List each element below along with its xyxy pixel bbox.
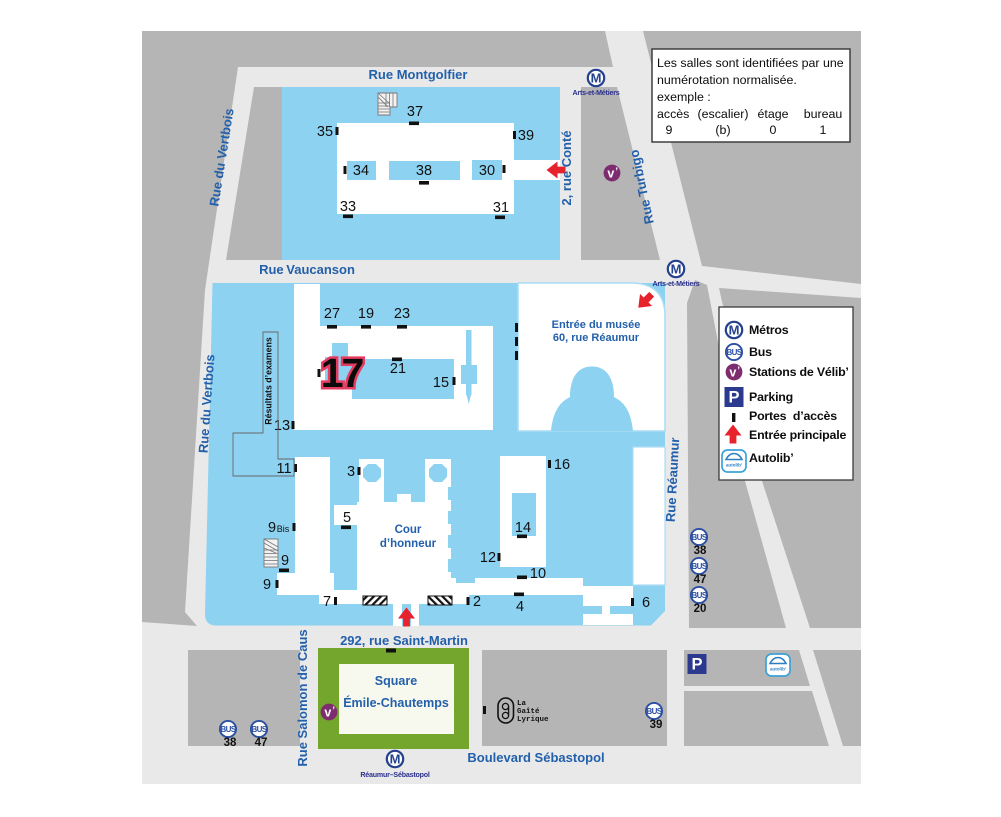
svg-text:6: 6: [642, 595, 650, 611]
svg-text:Portes d’accès: Portes d’accès: [749, 409, 837, 423]
svg-text:Entrée du musée: Entrée du musée: [552, 319, 641, 331]
svg-text:Stations de Vélib’: Stations de Vélib’: [749, 365, 849, 379]
svg-text:38: 38: [224, 737, 237, 749]
svg-text:(b): (b): [715, 123, 730, 137]
svg-text:16: 16: [554, 457, 570, 473]
svg-text:Rue Montgolfier: Rue Montgolfier: [369, 67, 468, 82]
svg-text:9: 9: [263, 577, 271, 593]
svg-text:étage: étage: [757, 107, 788, 121]
svg-text:1: 1: [820, 123, 827, 137]
svg-text:35: 35: [317, 124, 333, 140]
svg-text:Bus: Bus: [749, 345, 772, 359]
svg-text:Square: Square: [375, 674, 417, 688]
svg-text:11: 11: [276, 461, 291, 477]
svg-text:Rue Vaucanson: Rue Vaucanson: [259, 262, 355, 277]
svg-text:Réaumur–Sébastopol: Réaumur–Sébastopol: [360, 771, 430, 779]
svg-text:9: 9: [666, 123, 673, 137]
svg-text:23: 23: [394, 306, 410, 322]
svg-text:Gaîté: Gaîté: [517, 708, 540, 716]
svg-text:(escalier): (escalier): [698, 107, 749, 121]
svg-text:9: 9: [268, 520, 276, 536]
svg-text:12: 12: [480, 550, 496, 566]
svg-text:39: 39: [650, 719, 663, 731]
svg-text:numérotation normalisée.: numérotation normalisée.: [657, 73, 797, 87]
svg-text:10: 10: [530, 566, 546, 582]
svg-text:31: 31: [493, 200, 509, 216]
svg-text:4: 4: [516, 599, 524, 615]
svg-text:33: 33: [340, 199, 356, 215]
svg-text:Résultats d’examens: Résultats d’examens: [264, 337, 274, 425]
svg-text:27: 27: [324, 306, 340, 322]
svg-text:5: 5: [343, 510, 351, 526]
svg-text:38: 38: [694, 545, 707, 557]
svg-text:2: 2: [473, 594, 481, 610]
svg-text:13: 13: [274, 418, 290, 434]
svg-text:37: 37: [407, 104, 423, 120]
svg-text:7: 7: [323, 594, 331, 610]
svg-text:15: 15: [433, 375, 449, 391]
svg-text:Émile-Chautemps: Émile-Chautemps: [343, 695, 449, 710]
svg-text:30: 30: [479, 163, 495, 179]
svg-text:17: 17: [321, 350, 363, 396]
svg-text:Autolib’: Autolib’: [749, 451, 794, 465]
svg-text:2, rue Conté: 2, rue Conté: [559, 130, 574, 205]
svg-text:0: 0: [770, 123, 777, 137]
svg-text:21: 21: [390, 361, 406, 377]
svg-text:exemple :: exemple :: [657, 90, 711, 104]
svg-text:bureau: bureau: [804, 107, 843, 121]
svg-text:Parking: Parking: [749, 390, 793, 404]
svg-text:3: 3: [347, 464, 355, 480]
svg-text:Métros: Métros: [749, 323, 789, 337]
svg-text:Arts-et-Métiers: Arts-et-Métiers: [572, 89, 619, 97]
svg-text:60, rue Réaumur: 60, rue Réaumur: [553, 332, 640, 344]
svg-text:38: 38: [416, 163, 432, 179]
svg-text:Lyrique: Lyrique: [517, 716, 549, 724]
svg-text:9: 9: [281, 553, 289, 569]
svg-text:47: 47: [255, 737, 268, 749]
svg-text:Bis: Bis: [277, 524, 290, 534]
svg-text:Les salles sont identifiées pa: Les salles sont identifiées par une: [657, 56, 844, 70]
svg-text:Arts-et-Métiers: Arts-et-Métiers: [652, 280, 699, 288]
svg-text:34: 34: [353, 163, 369, 179]
svg-text:39: 39: [518, 128, 534, 144]
svg-text:accès: accès: [657, 107, 689, 121]
svg-text:d’honneur: d’honneur: [380, 538, 437, 550]
svg-text:292, rue Saint-Martin: 292, rue Saint-Martin: [340, 633, 468, 648]
svg-text:14: 14: [515, 520, 531, 536]
svg-text:Cour: Cour: [395, 524, 422, 536]
svg-text:Rue Salomon de Caus: Rue Salomon de Caus: [295, 629, 310, 766]
svg-text:Boulevard Sébastopol: Boulevard Sébastopol: [467, 750, 604, 765]
svg-text:47: 47: [694, 574, 707, 586]
svg-text:Entrée principale: Entrée principale: [749, 428, 846, 442]
svg-text:La: La: [517, 700, 527, 708]
svg-text:20: 20: [694, 603, 707, 615]
svg-text:19: 19: [358, 306, 374, 322]
